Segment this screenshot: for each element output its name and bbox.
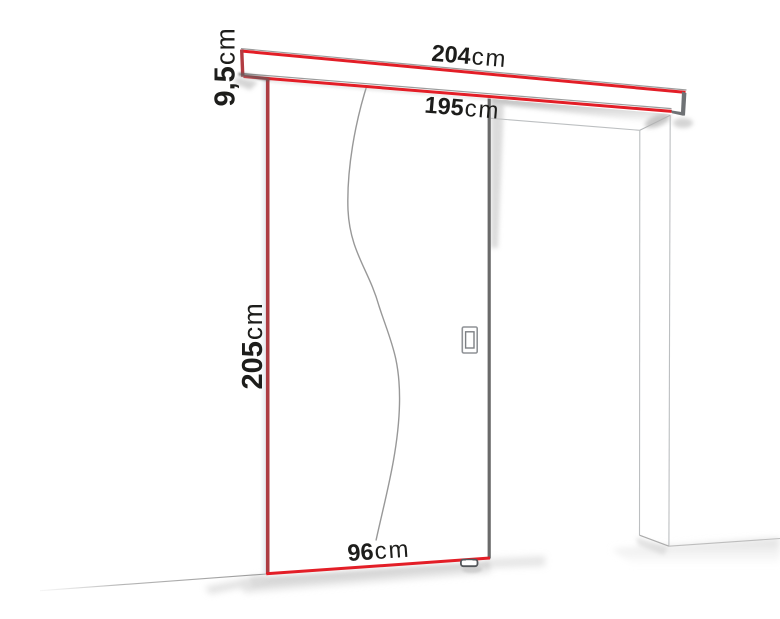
svg-text:9,5cm: 9,5cm	[210, 27, 242, 107]
svg-text:205cm: 205cm	[237, 302, 269, 390]
svg-text:96cm: 96cm	[347, 536, 412, 567]
